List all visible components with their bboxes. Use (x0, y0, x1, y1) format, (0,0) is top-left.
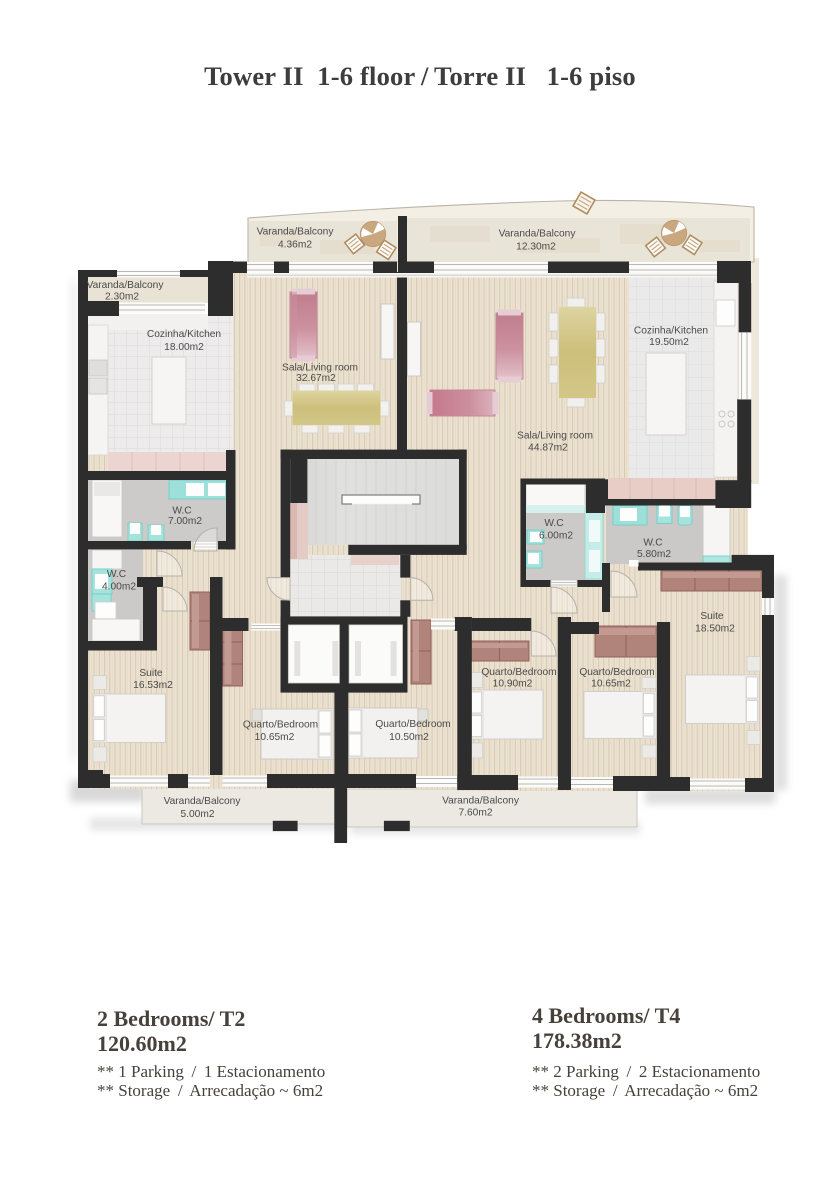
svg-text:10.65m2: 10.65m2 (591, 679, 631, 690)
svg-text:7.00m2: 7.00m2 (168, 516, 202, 527)
svg-text:5.00m2: 5.00m2 (181, 809, 215, 820)
svg-text:Suite: Suite (139, 668, 163, 679)
svg-text:7.60m2: 7.60m2 (459, 808, 493, 819)
svg-text:W.C: W.C (544, 518, 563, 529)
svg-text:2.30m2: 2.30m2 (105, 292, 139, 303)
svg-text:Cozinha/Kitchen: Cozinha/Kitchen (147, 329, 221, 340)
svg-text:Varanda/Balcony: Varanda/Balcony (499, 229, 577, 240)
svg-text:Quarto/Bedroom: Quarto/Bedroom (579, 667, 654, 678)
svg-text:19.50m2: 19.50m2 (649, 337, 689, 348)
svg-text:Sala/Living room: Sala/Living room (517, 431, 593, 442)
svg-text:Varanda/Balcony: Varanda/Balcony (257, 227, 335, 238)
svg-text:4.00m2: 4.00m2 (102, 582, 136, 593)
svg-text:12.30m2: 12.30m2 (516, 242, 556, 253)
svg-text:Quarto/Bedroom: Quarto/Bedroom (375, 719, 450, 730)
svg-text:10.50m2: 10.50m2 (389, 732, 429, 743)
svg-text:Cozinha/Kitchen: Cozinha/Kitchen (634, 326, 708, 337)
svg-text:W.C: W.C (172, 506, 191, 517)
svg-text:32.67m2: 32.67m2 (296, 373, 336, 384)
svg-text:Quarto/Bedroom: Quarto/Bedroom (243, 720, 318, 731)
svg-text:5.80m2: 5.80m2 (637, 549, 671, 560)
svg-text:16.53m2: 16.53m2 (133, 680, 173, 691)
svg-text:44.87m2: 44.87m2 (528, 443, 568, 454)
svg-text:10.65m2: 10.65m2 (255, 732, 295, 743)
svg-text:Suite: Suite (700, 611, 724, 622)
svg-text:Varanda/Balcony: Varanda/Balcony (164, 796, 242, 807)
svg-text:Varanda/Balcony: Varanda/Balcony (87, 280, 165, 291)
svg-text:Varanda/Balcony: Varanda/Balcony (442, 796, 520, 807)
svg-text:18.50m2: 18.50m2 (695, 624, 735, 635)
svg-text:W.C: W.C (643, 538, 662, 549)
svg-text:6.00m2: 6.00m2 (539, 531, 573, 542)
svg-text:18.00m2: 18.00m2 (164, 342, 204, 353)
svg-text:10.90m2: 10.90m2 (493, 679, 533, 690)
svg-text:4.36m2: 4.36m2 (278, 240, 312, 251)
svg-text:Quarto/Bedroom: Quarto/Bedroom (481, 667, 556, 678)
svg-text:Sala/Living room: Sala/Living room (282, 363, 358, 374)
svg-text:W.C: W.C (107, 569, 126, 580)
